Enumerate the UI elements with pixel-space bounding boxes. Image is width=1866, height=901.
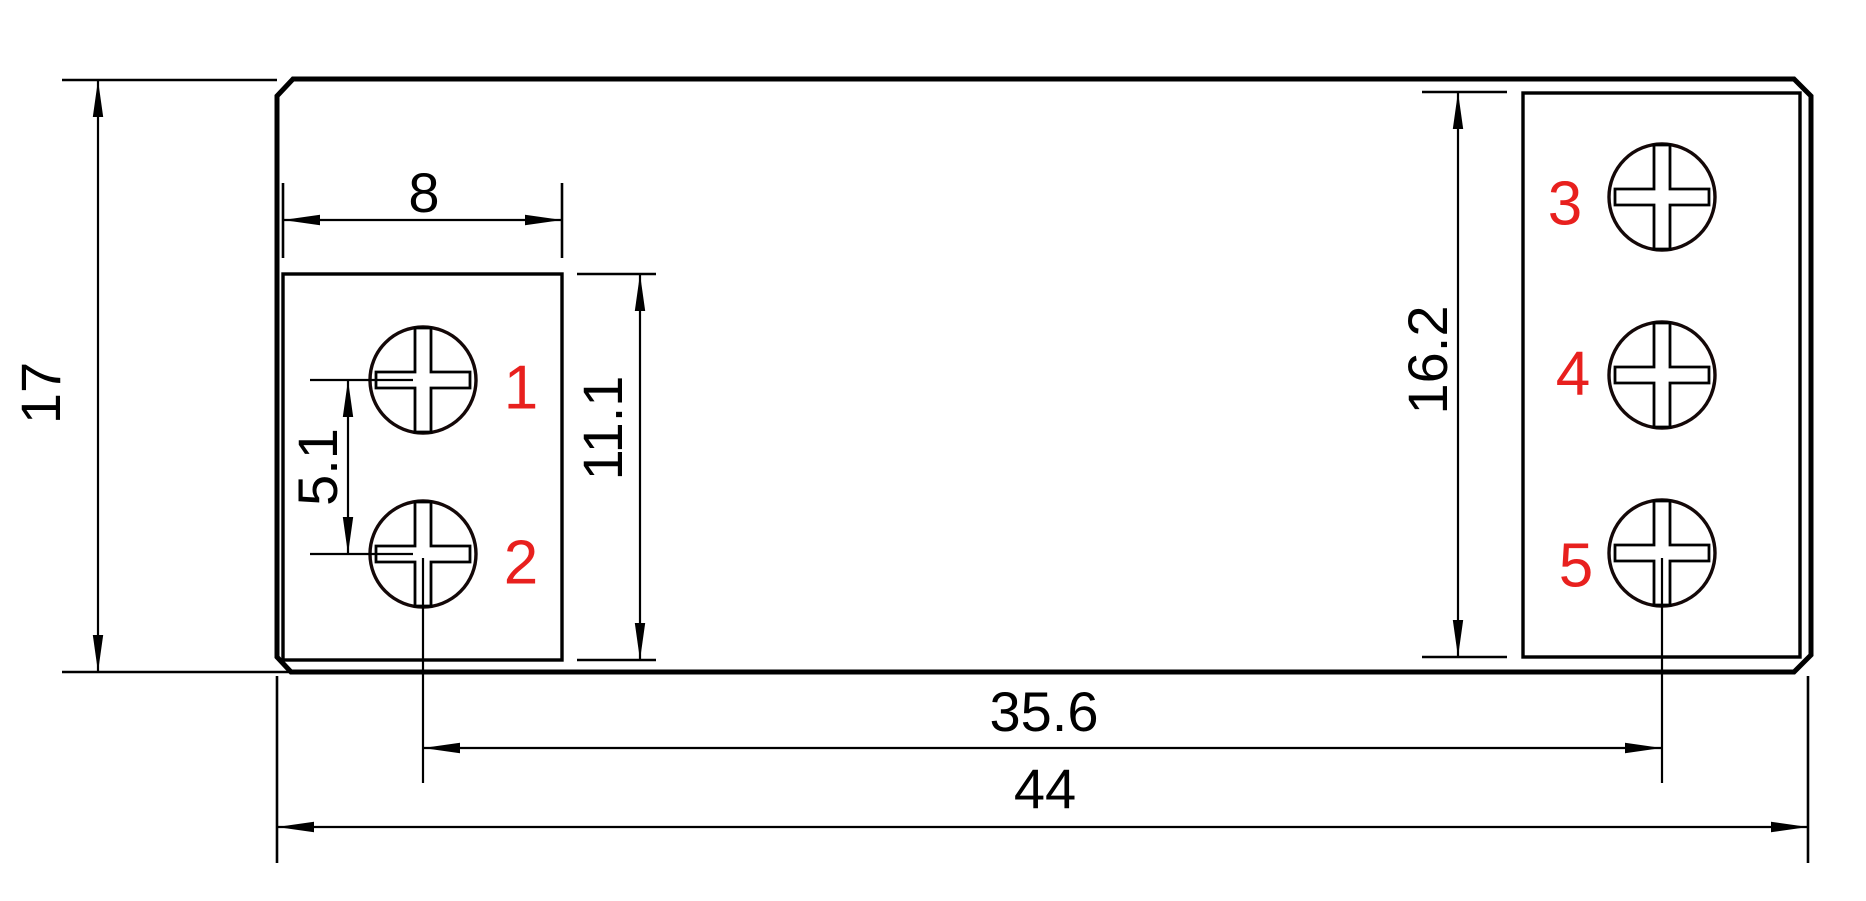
terminal-label-2: 2 <box>504 529 538 598</box>
drawing-canvas: 17 8 5.1 11.1 16.2 35.6 44 1 2 3 <box>0 0 1866 901</box>
terminal-label-5: 5 <box>1559 532 1593 601</box>
dimension-left-block-width-label: 8 <box>408 161 439 224</box>
technical-drawing: 17 8 5.1 11.1 16.2 35.6 44 1 2 3 <box>0 0 1866 901</box>
dimension-total-height: 17 <box>9 80 290 672</box>
dimension-screw-center-span-label: 35.6 <box>990 680 1099 743</box>
dimension-left-screw-pitch-label: 5.1 <box>286 428 349 506</box>
dimension-total-width-label: 44 <box>1014 757 1076 820</box>
screw-terminal-4 <box>1609 322 1715 428</box>
terminal-label-1: 1 <box>504 354 538 423</box>
dimension-total-height-label: 17 <box>9 362 72 424</box>
dimension-screw-center-span: 35.6 <box>423 680 1662 748</box>
screw-terminal-3 <box>1609 144 1715 250</box>
terminal-label-3: 3 <box>1548 170 1582 239</box>
dimension-right-block-height-label: 16.2 <box>1396 306 1459 415</box>
dimension-left-block-height-label: 11.1 <box>571 376 634 481</box>
terminal-label-4: 4 <box>1556 340 1590 409</box>
